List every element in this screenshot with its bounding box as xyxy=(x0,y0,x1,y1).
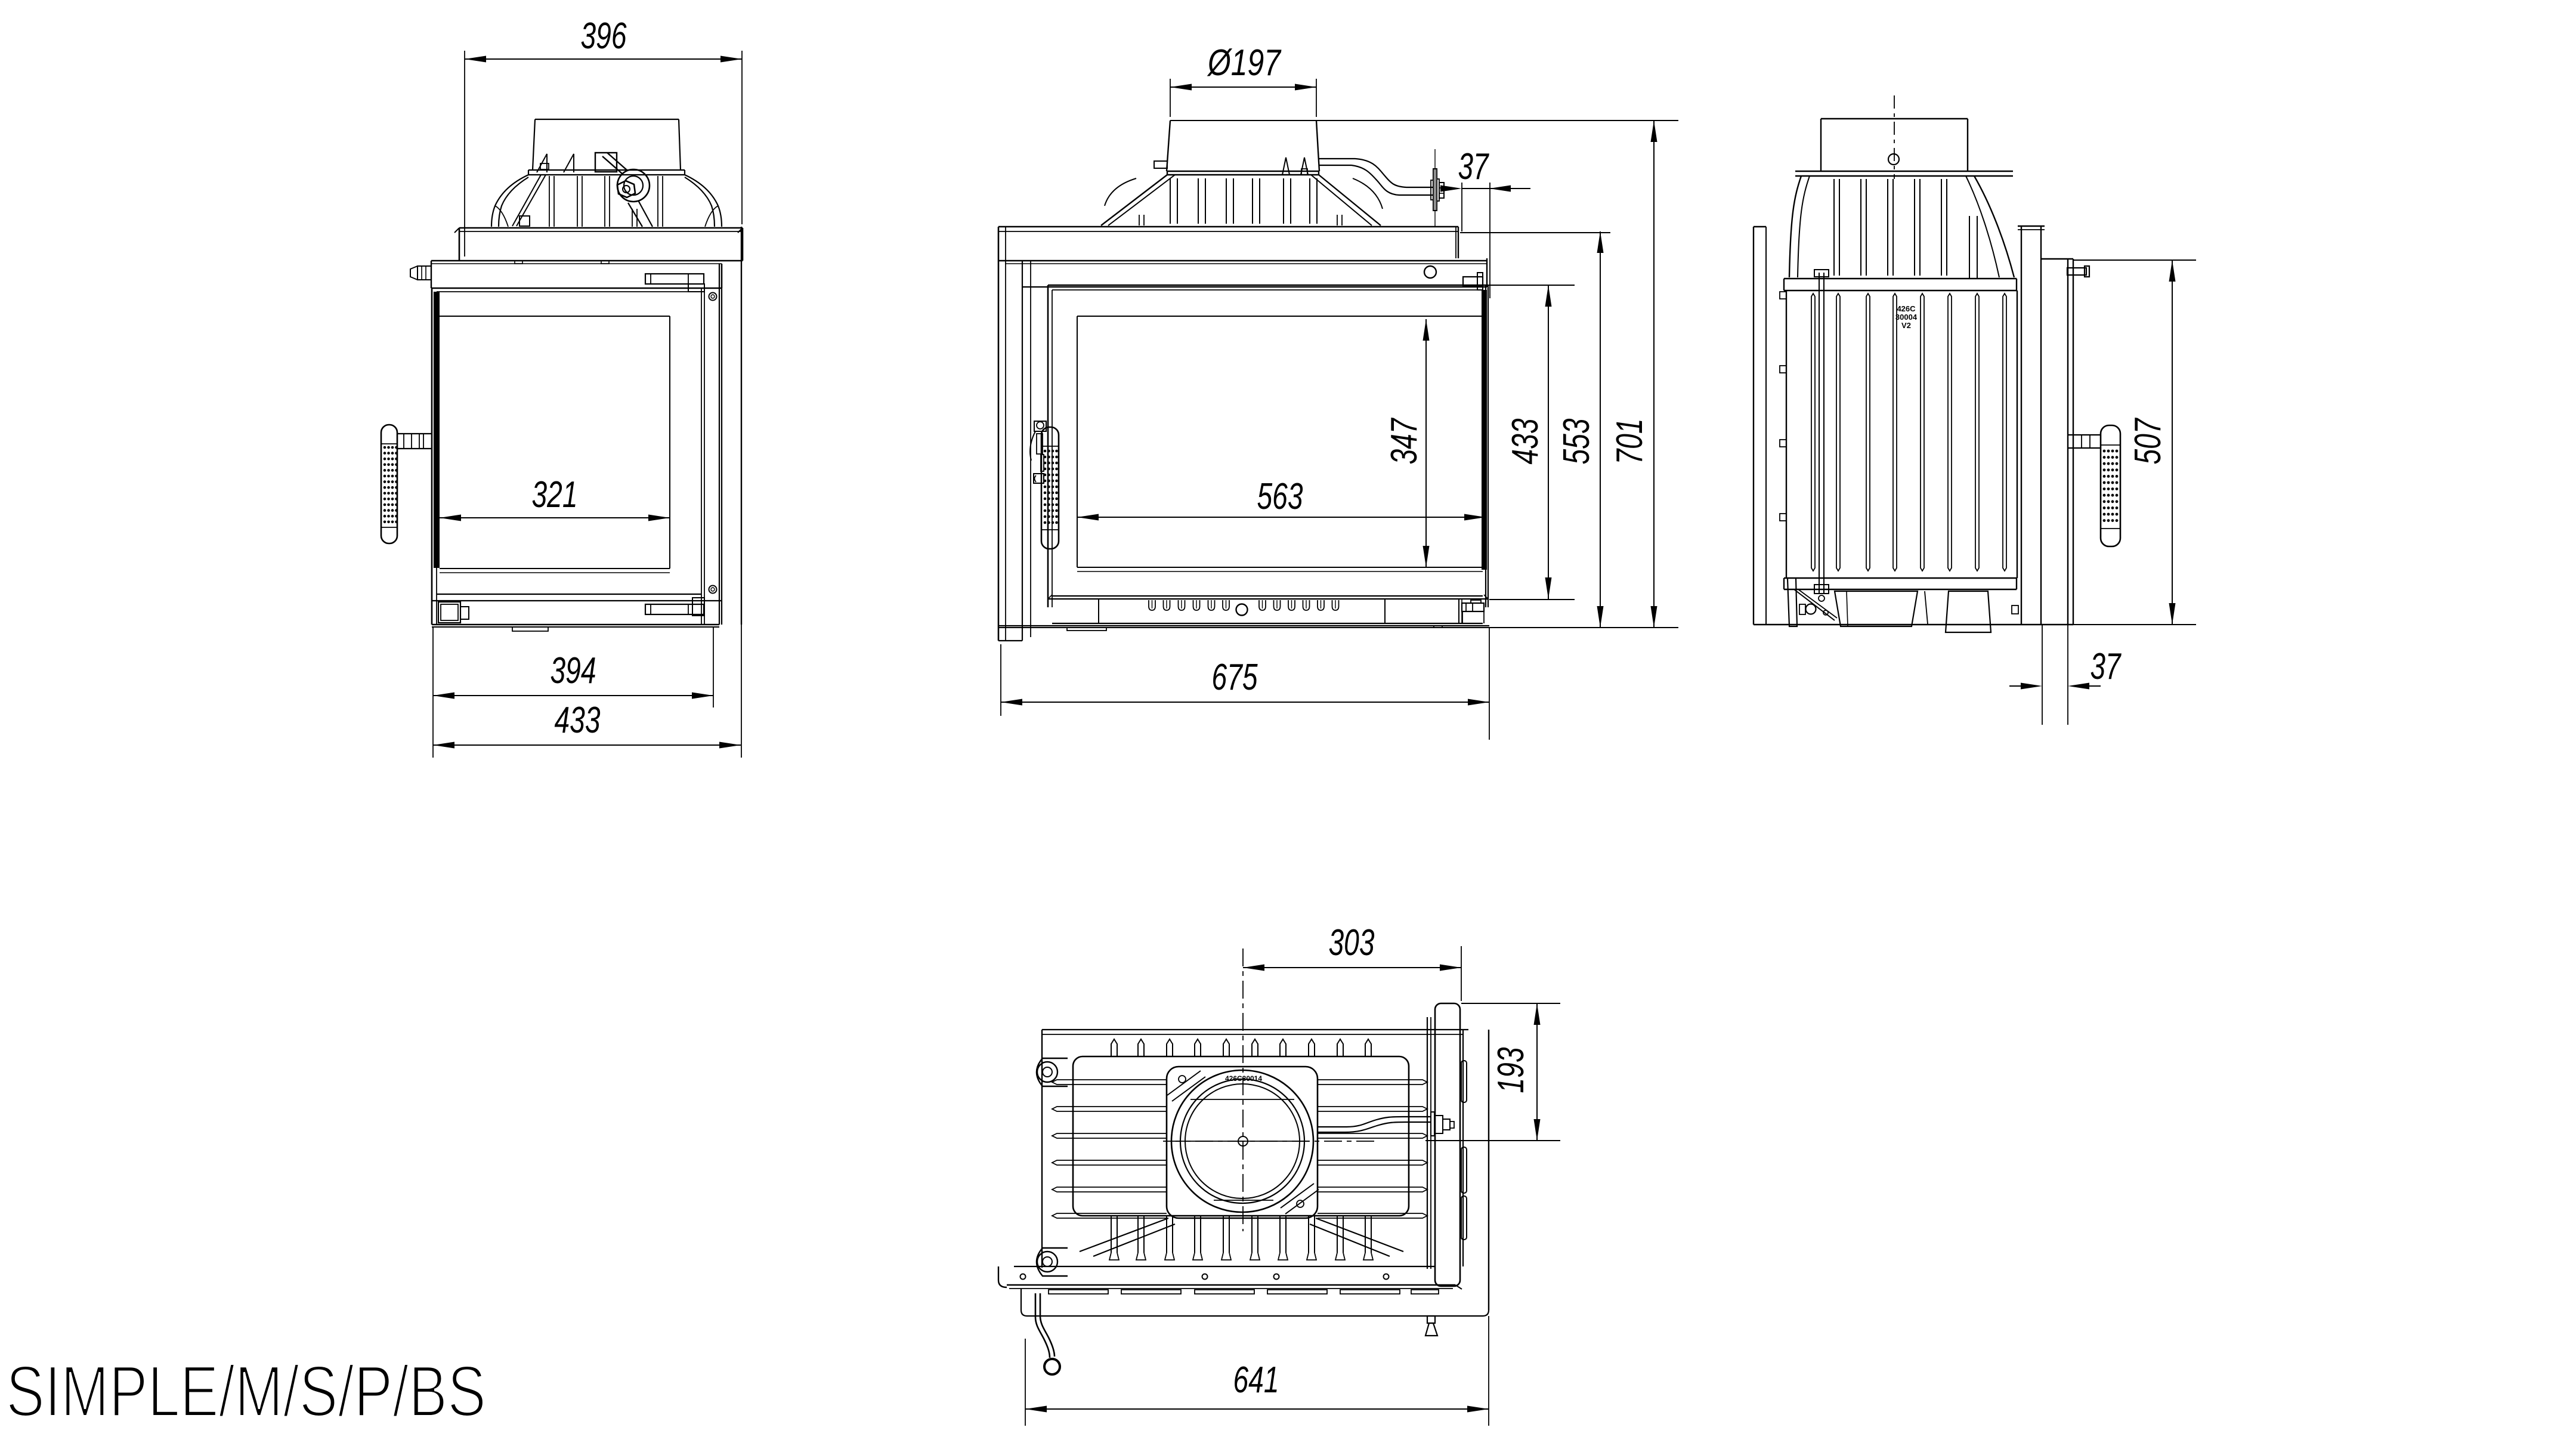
svg-text:V2: V2 xyxy=(1901,321,1911,330)
svg-text:701: 701 xyxy=(1609,419,1650,465)
svg-text:347: 347 xyxy=(1384,418,1425,465)
svg-text:37: 37 xyxy=(2091,646,2122,687)
svg-text:426C30014: 426C30014 xyxy=(1225,1074,1262,1083)
svg-text:SIMPLE/M/S/P/BS: SIMPLE/M/S/P/BS xyxy=(6,1351,486,1432)
svg-text:30004: 30004 xyxy=(1895,313,1918,322)
svg-text:394: 394 xyxy=(551,650,596,691)
svg-text:433: 433 xyxy=(1505,419,1546,465)
svg-text:193: 193 xyxy=(1490,1048,1532,1093)
svg-text:303: 303 xyxy=(1329,922,1375,963)
svg-text:507: 507 xyxy=(2127,418,2169,465)
svg-text:Ø197: Ø197 xyxy=(1207,42,1282,84)
svg-text:37: 37 xyxy=(1458,146,1490,187)
svg-text:563: 563 xyxy=(1257,476,1303,517)
svg-text:553: 553 xyxy=(1556,419,1597,465)
svg-text:426C: 426C xyxy=(1897,304,1916,313)
svg-text:396: 396 xyxy=(581,16,627,57)
svg-text:321: 321 xyxy=(532,474,578,515)
svg-text:641: 641 xyxy=(1233,1360,1279,1401)
svg-text:433: 433 xyxy=(555,700,601,741)
svg-text:675: 675 xyxy=(1212,657,1258,698)
